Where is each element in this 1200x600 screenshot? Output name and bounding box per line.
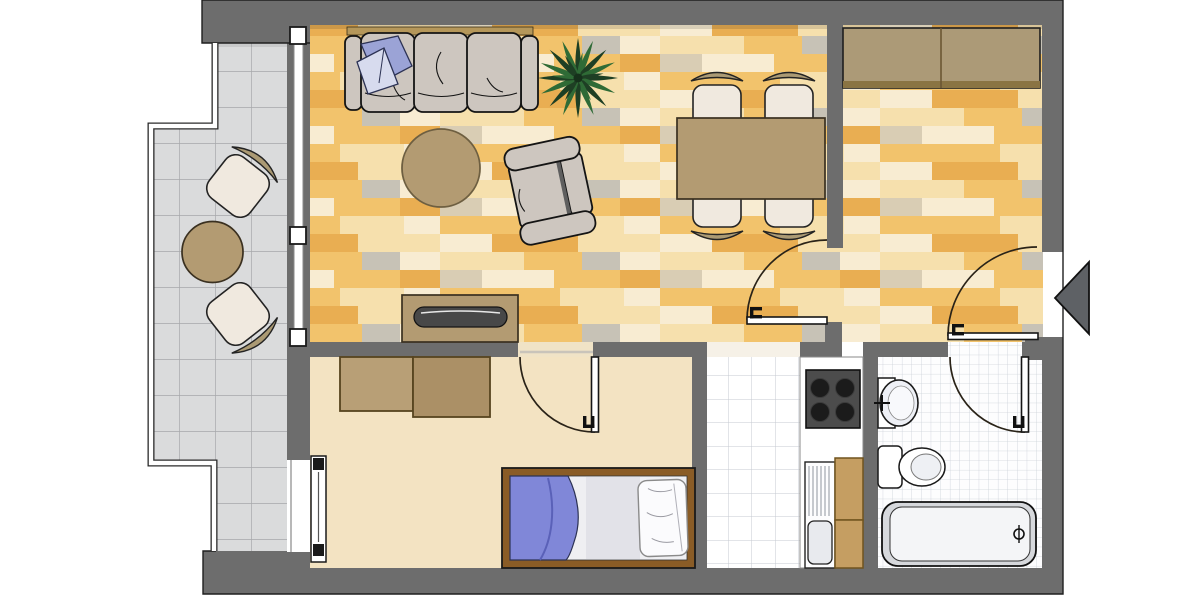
blanket (510, 476, 578, 560)
floor-plan (0, 0, 1200, 600)
wall-right-lower (1042, 337, 1063, 568)
kitchen-threshold (707, 342, 800, 357)
bedroom-wardrobe-left (340, 357, 413, 411)
burner (836, 379, 855, 398)
burner (811, 403, 830, 422)
burner (811, 379, 830, 398)
wall-living-hall-divider (827, 25, 843, 248)
wall-right-upper (1042, 25, 1063, 252)
wall-top (202, 0, 1063, 25)
wall-bath-top-right (1022, 342, 1042, 357)
burner (836, 403, 855, 422)
kitchen-fittings (800, 357, 863, 568)
toilet (878, 446, 945, 488)
wash-basin (874, 378, 918, 428)
wall-bedroom-top-right (593, 342, 707, 357)
round-rug (402, 129, 480, 207)
wall-bedroom-top-left (287, 342, 518, 357)
wall-bottom (287, 568, 1063, 594)
counter-gap (842, 342, 863, 357)
stove (806, 370, 860, 428)
kitchen-cabinet-lower (835, 520, 863, 568)
floor-plan-canvas (0, 0, 1200, 600)
hall-wardrobe (843, 28, 1040, 88)
wall-kitchen-bath-divider (863, 342, 878, 568)
sink-basin (808, 521, 832, 564)
bathtub (882, 502, 1036, 566)
bedroom-wardrobe-right (413, 357, 490, 417)
bedroom-threshold (518, 342, 593, 357)
bed-pillow (638, 479, 689, 557)
dining-table (677, 118, 825, 199)
entrance-arrow-icon (1055, 262, 1089, 334)
balcony-round-table (182, 222, 243, 283)
kitchen-cabinet-upper (835, 458, 863, 520)
single-bed (502, 468, 695, 568)
kitchen-sink (805, 462, 835, 568)
bedroom-window (287, 456, 326, 562)
sideboard (402, 295, 518, 342)
sofa (345, 33, 538, 112)
potted-plant (538, 38, 618, 118)
